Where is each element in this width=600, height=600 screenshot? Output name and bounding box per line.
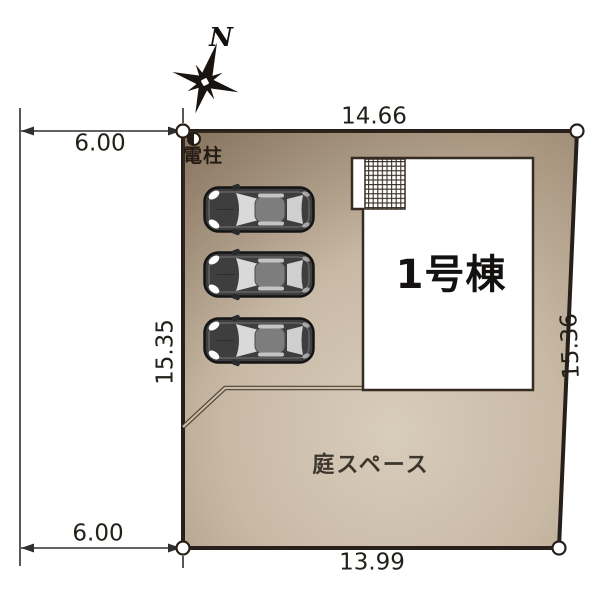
- utility-pole-label: 電柱: [183, 147, 223, 166]
- dimension-left-depth: 15.35: [155, 319, 178, 385]
- dimension-top-width: 14.66: [341, 106, 407, 129]
- utility-pole-icon: [188, 133, 200, 145]
- dimension-right-depth: 15.36: [558, 313, 584, 380]
- site-plan-drawing: [0, 0, 600, 600]
- compass-north-label: N: [209, 25, 233, 51]
- car-icon: [205, 183, 314, 235]
- dimension-bottom-width: 13.99: [339, 552, 405, 575]
- car-icon: [205, 248, 314, 300]
- dimension-road-offset-top: 6.00: [74, 133, 125, 156]
- dimension-road-offset-bottom: 6.00: [72, 523, 123, 546]
- car-icon: [205, 314, 314, 366]
- balcony-hatch: [365, 159, 405, 209]
- garden-label: 庭スペース: [312, 455, 429, 477]
- building-label: 1号棟: [396, 255, 507, 295]
- compass-rose-icon: [163, 33, 251, 124]
- site-plan-canvas: N 14.66 13.99 15.35 15.36 6.00 6.00 電柱 1…: [0, 0, 600, 600]
